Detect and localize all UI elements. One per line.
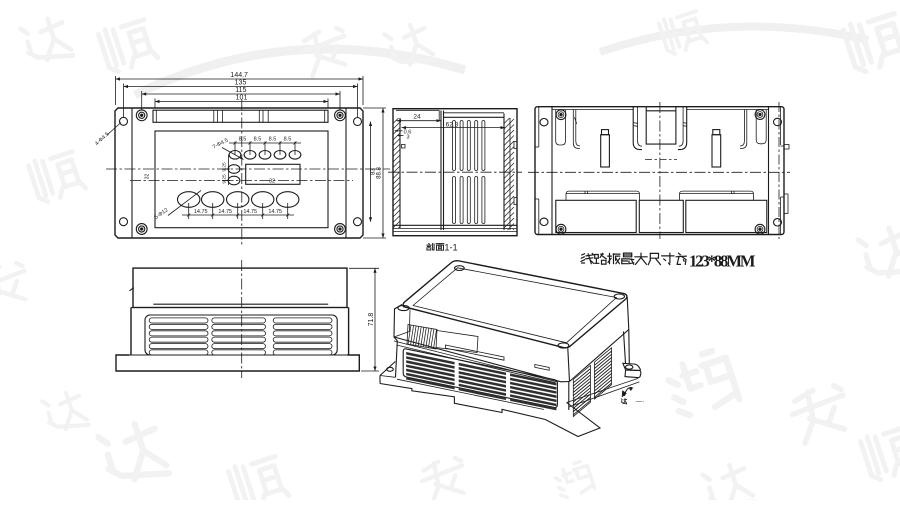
svg-text:14.75: 14.75 (268, 209, 282, 215)
svg-text:123*88MM: 123*88MM (689, 251, 756, 270)
svg-text:88.8: 88.8 (377, 167, 383, 179)
svg-text:71.8: 71.8 (368, 313, 375, 327)
svg-text:32: 32 (145, 174, 151, 180)
svg-text:62.3: 62.3 (446, 121, 459, 128)
svg-text:8.5: 8.5 (269, 137, 277, 143)
svg-text:115: 115 (235, 87, 246, 94)
svg-text:1-1: 1-1 (444, 242, 457, 252)
svg-text:8.5: 8.5 (284, 137, 292, 143)
svg-text:32: 32 (269, 179, 275, 185)
svg-text:144.7: 144.7 (230, 72, 248, 79)
svg-text:3: 3 (406, 135, 409, 141)
svg-text:101: 101 (236, 95, 248, 102)
svg-text:14.75: 14.75 (194, 209, 208, 215)
svg-text:14.75: 14.75 (243, 209, 257, 215)
svg-text:24: 24 (413, 114, 421, 121)
svg-text:14.75: 14.75 (218, 209, 232, 215)
svg-text:9.25: 9.25 (222, 174, 228, 184)
svg-text:9.25: 9.25 (222, 162, 228, 172)
svg-text:8.5: 8.5 (239, 137, 247, 143)
svg-text:135: 135 (235, 80, 247, 87)
svg-text:8.5: 8.5 (254, 137, 262, 143)
svg-text:—·: —· (636, 399, 645, 406)
